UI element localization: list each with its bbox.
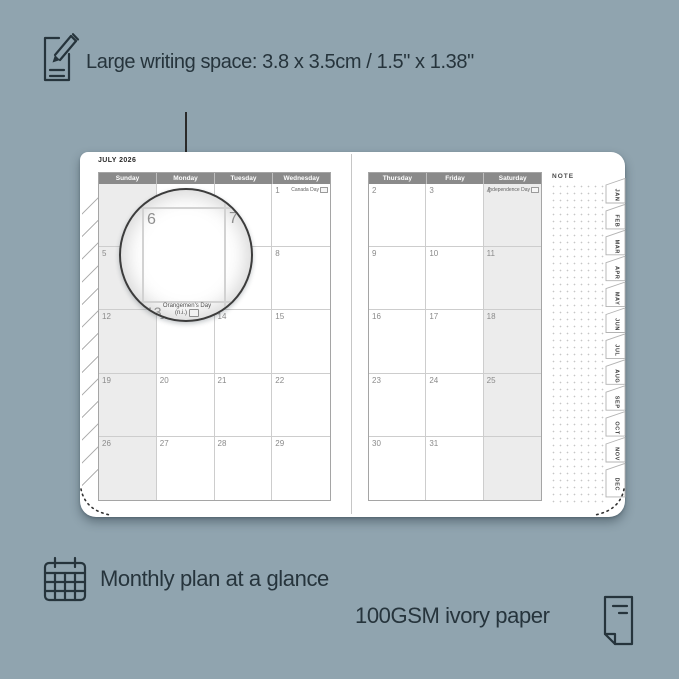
day-header-monday: Monday xyxy=(157,173,215,184)
calendar-cell-31: 31 xyxy=(426,437,483,500)
calendar-cell-4: 4Independence Day xyxy=(484,184,541,247)
month-tab-label: FEB xyxy=(614,214,620,227)
calendar-cell-24: 24 xyxy=(426,374,483,437)
flag-icon xyxy=(189,309,199,317)
day-header-saturday: Saturday xyxy=(484,173,541,184)
calendar-cell-26: 26 xyxy=(99,437,157,500)
day-number: 30 xyxy=(372,439,381,448)
day-number: 28 xyxy=(218,439,227,448)
calendar-cell-3: 3 xyxy=(426,184,483,247)
holiday-name: Orangemen's Day xyxy=(157,303,217,309)
month-tab-label: MAR xyxy=(614,240,620,254)
day-number: 11 xyxy=(487,249,495,258)
day-number: 3 xyxy=(429,186,433,195)
magnified-day-6: 6 xyxy=(147,211,156,229)
calendar-cell-21: 21 xyxy=(215,374,273,437)
day-number: 1 xyxy=(275,186,279,195)
magnified-holiday: Orangemen's Day (n.i.) xyxy=(157,303,217,317)
binding-hatch-decoration xyxy=(82,192,99,488)
day-number: 24 xyxy=(429,376,438,385)
calendar-cell-25: 25 xyxy=(484,374,541,437)
day-number: 22 xyxy=(275,376,284,385)
day-header-wednesday: Wednesday xyxy=(273,173,330,184)
day-number: 31 xyxy=(429,439,438,448)
calendar-cell-30: 30 xyxy=(369,437,426,500)
calendar-cell-20: 20 xyxy=(157,374,215,437)
day-number: 16 xyxy=(372,312,381,321)
magnified-day-7: 7 xyxy=(229,210,238,228)
holiday-entry: Independence Day xyxy=(488,187,539,193)
calendar-cell-22: 22 xyxy=(272,374,330,437)
month-tab-label: AUG xyxy=(614,369,620,383)
calendar-cell-2: 2 xyxy=(369,184,426,247)
day-number: 27 xyxy=(160,439,169,448)
day-number: 12 xyxy=(102,312,111,321)
calendar-cell-18: 18 xyxy=(484,310,541,373)
writing-note-icon xyxy=(40,31,80,85)
calendar-cell-9: 9 xyxy=(369,247,426,310)
magnified-grid-line xyxy=(121,207,251,209)
day-number: 19 xyxy=(102,376,111,385)
calendar-cell-29: 29 xyxy=(272,437,330,500)
flag-icon xyxy=(320,187,328,193)
holiday-entry: Canada Day xyxy=(291,187,328,193)
day-header-thursday: Thursday xyxy=(369,173,427,184)
holiday-name: Independence Day xyxy=(488,187,530,193)
holiday-name: Canada Day xyxy=(291,187,319,193)
month-tab-label: JUN xyxy=(614,318,620,331)
month-tab-label: APR xyxy=(614,266,620,279)
flag-icon xyxy=(531,187,539,193)
day-header-friday: Friday xyxy=(427,173,485,184)
calendar-cell-17: 17 xyxy=(426,310,483,373)
day-number: 18 xyxy=(487,312,496,321)
day-number: 9 xyxy=(372,249,376,258)
day-number: 5 xyxy=(102,249,106,258)
day-header-tuesday: Tuesday xyxy=(215,173,273,184)
holiday-suffix: (n.i.) xyxy=(175,310,187,316)
calendar-cell-1: 1Canada Day xyxy=(272,184,330,247)
month-tab-label: JAN xyxy=(614,189,620,202)
note-dot-grid xyxy=(550,183,608,503)
month-title: JULY 2026 xyxy=(98,157,136,164)
month-tab-label: OCT xyxy=(614,421,620,434)
calendar-cell-empty xyxy=(484,437,541,500)
calendar-cell-28: 28 xyxy=(215,437,273,500)
product-infographic: Large writing space: 3.8 x 3.5cm / 1.5" … xyxy=(0,0,679,679)
day-header-sunday: Sunday xyxy=(99,173,157,184)
calendar-cell-8: 8 xyxy=(272,247,330,310)
calendar-cell-23: 23 xyxy=(369,374,426,437)
calendar-cell-27: 27 xyxy=(157,437,215,500)
calendar-icon xyxy=(42,556,88,604)
calendar-cell-15: 15 xyxy=(272,310,330,373)
day-number: 26 xyxy=(102,439,111,448)
month-tab-label: DEC xyxy=(614,478,620,491)
day-number: 15 xyxy=(275,312,284,321)
day-number: 29 xyxy=(275,439,284,448)
calendar-cell-10: 10 xyxy=(426,247,483,310)
month-tab-label: SEP xyxy=(614,396,620,409)
day-number: 23 xyxy=(372,376,381,385)
day-number: 8 xyxy=(275,249,279,258)
month-tab-label: MAY xyxy=(614,292,620,306)
calendar-cell-11: 11 xyxy=(484,247,541,310)
month-tab-label: JUL xyxy=(614,344,620,356)
paper-caption: 100GSM ivory paper xyxy=(355,603,550,629)
month-tab-label: NOV xyxy=(614,447,620,461)
calendar-cell-19: 19 xyxy=(99,374,157,437)
paper-sheet-icon xyxy=(598,595,638,647)
magnifier-circle: 6 7 13 Orangemen's Day (n.i.) xyxy=(119,188,253,322)
day-number: 2 xyxy=(372,186,376,195)
day-number: 25 xyxy=(487,376,496,385)
note-label: NOTE xyxy=(552,173,574,180)
day-number: 17 xyxy=(429,312,438,321)
day-number: 21 xyxy=(218,376,227,385)
month-index-tabs: JANFEBMARAPRMAYJUNJULAUGSEPOCTNOVDEC xyxy=(605,178,627,512)
day-number: 20 xyxy=(160,376,169,385)
calendar-cell-16: 16 xyxy=(369,310,426,373)
right-month-grid: ThursdayFridaySaturday234Independence Da… xyxy=(368,172,542,501)
monthly-plan-caption: Monthly plan at a glance xyxy=(100,566,329,592)
page-spine xyxy=(351,154,352,514)
day-number: 10 xyxy=(429,249,438,258)
writing-space-caption: Large writing space: 3.8 x 3.5cm / 1.5" … xyxy=(86,51,474,74)
